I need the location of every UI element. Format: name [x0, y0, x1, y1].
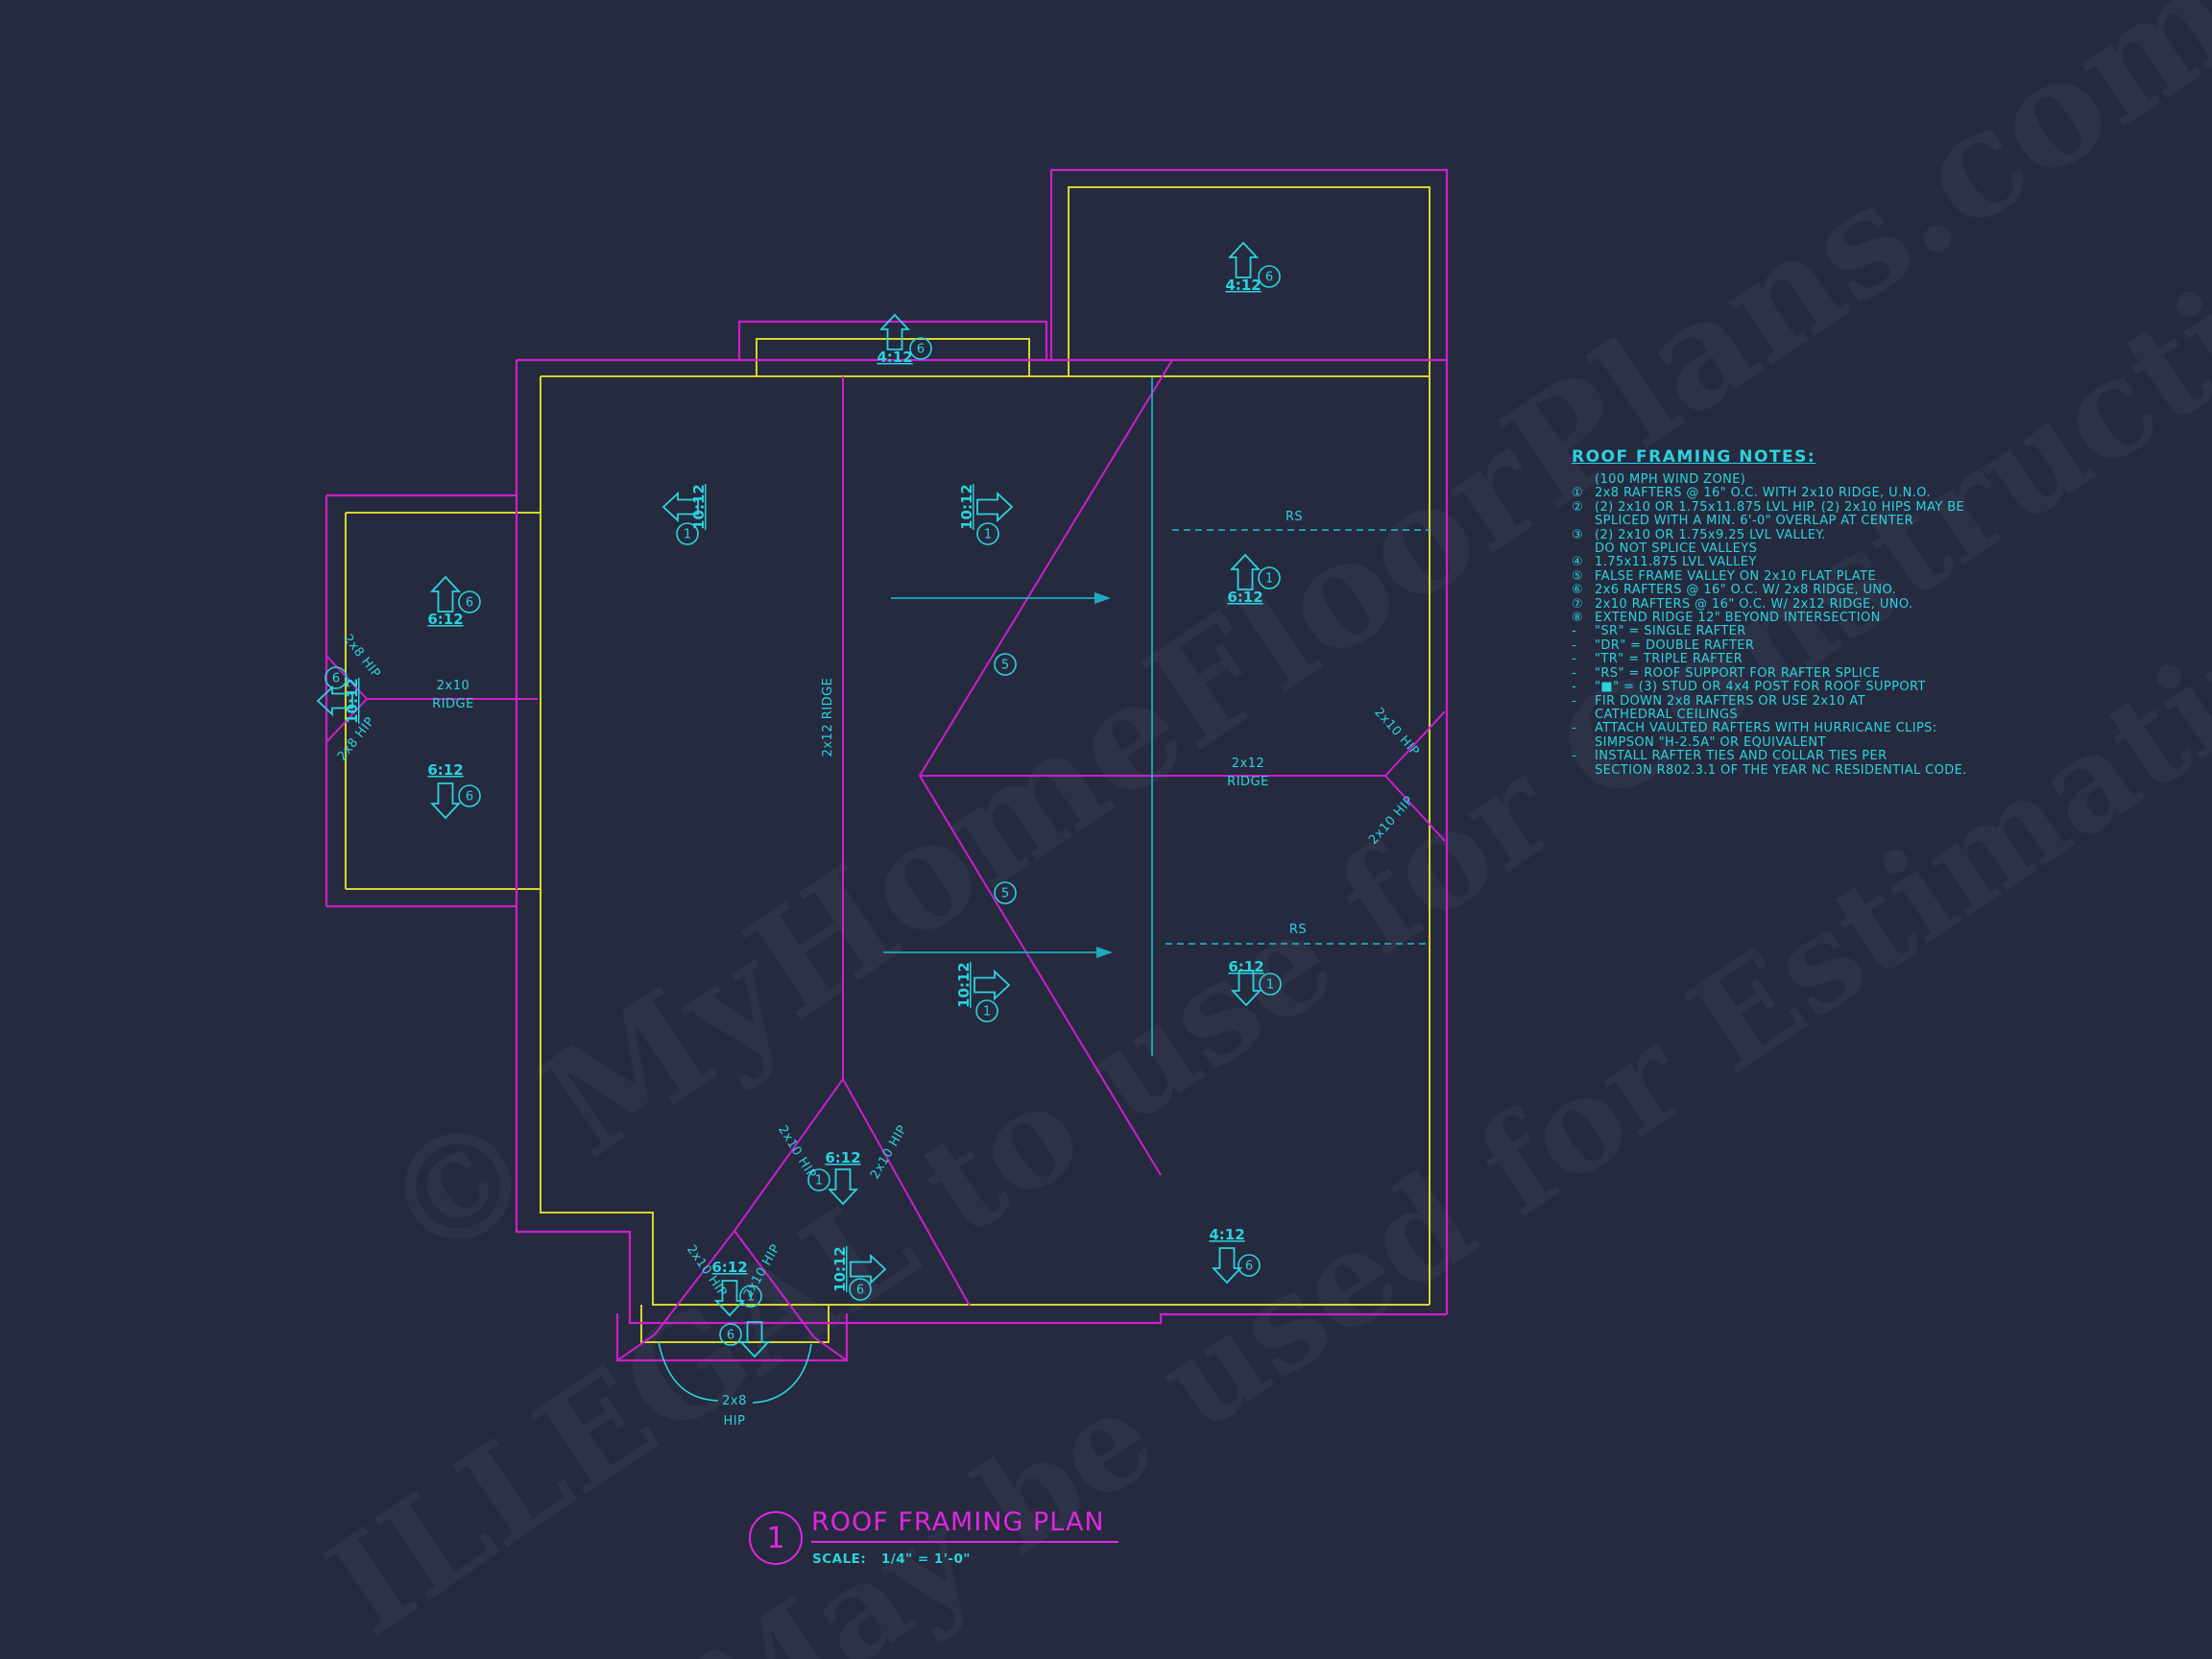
- ridge-label: 2x10: [437, 679, 470, 693]
- note-prefix: ④: [1572, 556, 1595, 569]
- note-prefix: ⑦: [1572, 598, 1595, 612]
- hip-label: 2x10 HIP: [1366, 794, 1417, 848]
- note-line: -"■" = (3) STUD OR 4x4 POST FOR ROOF SUP…: [1572, 681, 2004, 694]
- note-prefix: [1572, 709, 1595, 722]
- note-prefix: -: [1572, 667, 1595, 681]
- note-text: FALSE FRAME VALLEY ON 2x10 FLAT PLATE: [1595, 570, 2004, 584]
- note-prefix: ②: [1572, 501, 1595, 515]
- slope-label: 6:12: [427, 761, 463, 779]
- notes-title: ROOF FRAMING NOTES:: [1572, 447, 2004, 467]
- note-ref-number: 6: [332, 672, 340, 686]
- rs-label: RS: [1289, 923, 1307, 937]
- note-ref-number: 1: [983, 1005, 991, 1020]
- hip-label: 2x8: [722, 1394, 747, 1408]
- note-text: 2x8 RAFTERS @ 16" O.C. WITH 2x10 RIDGE, …: [1595, 487, 2004, 500]
- note-text: (100 MPH WIND ZONE): [1595, 473, 2004, 487]
- roof-framing-plan-drawing: 4:124:1210:1210:126:126:1210:126:126:121…: [0, 0, 2212, 1659]
- page-title: ROOF FRAMING PLAN: [811, 1507, 1118, 1543]
- slope-label: 6:12: [1227, 589, 1262, 606]
- note-text: "TR" = TRIPLE RAFTER: [1595, 653, 2004, 666]
- hip-label: HIP: [724, 1414, 746, 1429]
- ridge-label: 2x12 RIDGE: [821, 678, 835, 757]
- note-line: SIMPSON "H-2.5A" OR EQUIVALENT: [1572, 736, 2004, 750]
- note-line: -FIR DOWN 2x8 RAFTERS OR USE 2x10 AT: [1572, 695, 2004, 709]
- note-text: "DR" = DOUBLE RAFTER: [1595, 639, 2004, 653]
- note-text: SPLICED WITH A MIN. 6'-0" OVERLAP AT CEN…: [1595, 515, 2004, 528]
- note-line: -"RS" = ROOF SUPPORT FOR RAFTER SPLICE: [1572, 667, 2004, 681]
- note-prefix: -: [1572, 653, 1595, 666]
- note-line: ⑧EXTEND RIDGE 12" BEYOND INTERSECTION: [1572, 612, 2004, 625]
- note-ref-number: 6: [917, 343, 925, 357]
- scale-label: SCALE:: [812, 1551, 866, 1567]
- note-ref-number: 1: [984, 528, 992, 542]
- note-line: SPLICED WITH A MIN. 6'-0" OVERLAP AT CEN…: [1572, 515, 2004, 528]
- slope-arrow-up: [881, 315, 908, 349]
- notes-list: (100 MPH WIND ZONE)①2x8 RAFTERS @ 16" O.…: [1572, 473, 2004, 778]
- direction-arrowhead: [1096, 947, 1113, 958]
- note-text: EXTEND RIDGE 12" BEYOND INTERSECTION: [1595, 612, 2004, 625]
- note-prefix: [1572, 542, 1595, 556]
- slope-arrow-down: [1214, 1248, 1240, 1283]
- note-text: "■" = (3) STUD OR 4x4 POST FOR ROOF SUPP…: [1595, 681, 2004, 694]
- slope-label: 10:12: [955, 962, 973, 1008]
- title-block: 1 ROOF FRAMING PLAN SCALE: 1/4" = 1'-0": [739, 1505, 1238, 1592]
- rafter-splice-support-lines: [1166, 530, 1430, 944]
- note-line: -"SR" = SINGLE RAFTER: [1572, 625, 2004, 638]
- note-line: ⑤FALSE FRAME VALLEY ON 2x10 FLAT PLATE: [1572, 570, 2004, 584]
- note-line: -"DR" = DOUBLE RAFTER: [1572, 639, 2004, 653]
- slope-label: 10:12: [344, 678, 361, 724]
- note-line: (100 MPH WIND ZONE): [1572, 473, 2004, 487]
- detail-number-bubble: 1: [749, 1511, 803, 1565]
- note-text: "SR" = SINGLE RAFTER: [1595, 625, 2004, 638]
- note-line: CATHEDRAL CEILINGS: [1572, 709, 2004, 722]
- note-line: ②(2) 2x10 OR 1.75x11.875 LVL HIP. (2) 2x…: [1572, 501, 2004, 515]
- ridge-hip-valley-lines: [326, 360, 1445, 1360]
- note-text: SIMPSON "H-2.5A" OR EQUIVALENT: [1595, 736, 2004, 750]
- slope-label: 10:12: [958, 484, 975, 530]
- note-ref-number: 5: [1001, 887, 1009, 902]
- note-line: ⑥2x6 RAFTERS @ 16" O.C. W/ 2x8 RIDGE, UN…: [1572, 584, 2004, 597]
- note-prefix: -: [1572, 625, 1595, 638]
- slope-arrow-right: [974, 972, 1009, 998]
- slope-arrow-down: [1233, 971, 1260, 1005]
- hip-label: 2x8 HIP: [340, 632, 383, 681]
- note-prefix: -: [1572, 722, 1595, 735]
- note-prefix: ⑧: [1572, 612, 1595, 625]
- note-text: (2) 2x10 OR 1.75x11.875 LVL HIP. (2) 2x1…: [1595, 501, 2004, 515]
- note-prefix: -: [1572, 695, 1595, 709]
- note-prefix: ⑤: [1572, 570, 1595, 584]
- scale-note: SCALE: 1/4" = 1'-0": [812, 1551, 971, 1567]
- hip-label: 2x10 HIP: [775, 1123, 819, 1182]
- slope-label: 4:12: [877, 349, 912, 366]
- note-prefix: [1572, 515, 1595, 528]
- note-ref-number: 1: [815, 1174, 823, 1189]
- hip-label: 2x10 HIP: [868, 1123, 910, 1182]
- note-prefix: [1572, 764, 1595, 778]
- note-text: DO NOT SPLICE VALLEYS: [1595, 542, 2004, 556]
- note-ref-number: 1: [1266, 978, 1274, 993]
- note-ref-number: 6: [727, 1329, 734, 1343]
- note-prefix: -: [1572, 750, 1595, 763]
- slope-label: 6:12: [825, 1149, 860, 1166]
- slope-arrow-down: [829, 1169, 856, 1204]
- note-ref-number: 6: [1245, 1260, 1253, 1274]
- note-line: ③(2) 2x10 OR 1.75x9.25 LVL VALLEY.: [1572, 529, 2004, 542]
- slope-arrow-up: [1230, 243, 1257, 277]
- note-text: (2) 2x10 OR 1.75x9.25 LVL VALLEY.: [1595, 529, 2004, 542]
- slope-label: 4:12: [1225, 276, 1261, 294]
- note-text: INSTALL RAFTER TIES AND COLLAR TIES PER: [1595, 750, 2004, 763]
- note-prefix: ①: [1572, 487, 1595, 500]
- note-line: -INSTALL RAFTER TIES AND COLLAR TIES PER: [1572, 750, 2004, 763]
- note-text: 1.75x11.875 LVL VALLEY: [1595, 556, 2004, 569]
- note-line: -ATTACH VAULTED RAFTERS WITH HURRICANE C…: [1572, 722, 2004, 735]
- note-text: ATTACH VAULTED RAFTERS WITH HURRICANE CL…: [1595, 722, 2004, 735]
- hip-label: 2x10 HIP: [1371, 706, 1422, 759]
- ridge-label: RIDGE: [1227, 775, 1269, 789]
- note-line: SECTION R802.3.1 OF THE YEAR NC RESIDENT…: [1572, 764, 2004, 778]
- note-ref-number: 6: [1265, 271, 1273, 285]
- note-line: ①2x8 RAFTERS @ 16" O.C. WITH 2x10 RIDGE,…: [1572, 487, 2004, 500]
- note-text: "RS" = ROOF SUPPORT FOR RAFTER SPLICE: [1595, 667, 2004, 681]
- slope-arrow-up: [1232, 555, 1259, 589]
- ridge-label: RIDGE: [432, 697, 474, 711]
- slope-arrow-up: [432, 577, 459, 612]
- rs-label: RS: [1286, 510, 1303, 524]
- note-ref-number: 6: [466, 790, 473, 805]
- note-line: ④1.75x11.875 LVL VALLEY: [1572, 556, 2004, 569]
- note-ref-number: 1: [684, 528, 691, 542]
- note-prefix: -: [1572, 681, 1595, 694]
- slope-label: 4:12: [1209, 1226, 1244, 1243]
- roof-framing-notes: ROOF FRAMING NOTES: (100 MPH WIND ZONE)①…: [1572, 447, 2004, 778]
- slope-label: 10:12: [690, 484, 708, 530]
- slope-label: 6:12: [427, 611, 463, 628]
- note-line: ⑦2x10 RAFTERS @ 16" O.C. W/ 2x12 RIDGE, …: [1572, 598, 2004, 612]
- note-text: 2x10 RAFTERS @ 16" O.C. W/ 2x12 RIDGE, U…: [1595, 598, 2004, 612]
- note-prefix: -: [1572, 639, 1595, 653]
- note-prefix: [1572, 736, 1595, 750]
- ridge-label: 2x12: [1232, 757, 1265, 771]
- note-ref-number: 5: [1001, 659, 1009, 673]
- slope-label: 10:12: [831, 1246, 849, 1292]
- note-ref-number: 6: [466, 596, 473, 611]
- note-prefix: [1572, 473, 1595, 487]
- note-ref-number: 1: [1265, 572, 1273, 587]
- slope-label: 6:12: [1228, 958, 1263, 975]
- note-text: 2x6 RAFTERS @ 16" O.C. W/ 2x8 RIDGE, UNO…: [1595, 584, 2004, 597]
- slope-arrow-right: [851, 1256, 885, 1283]
- slope-arrow-down: [741, 1322, 768, 1357]
- note-line: -"TR" = TRIPLE RAFTER: [1572, 653, 2004, 666]
- scale-value: 1/4" = 1'-0": [881, 1551, 971, 1567]
- note-prefix: ③: [1572, 529, 1595, 542]
- note-ref-number: 6: [856, 1284, 864, 1298]
- note-text: SECTION R802.3.1 OF THE YEAR NC RESIDENT…: [1595, 764, 2004, 778]
- direction-arrowhead: [1094, 592, 1111, 604]
- note-text: CATHEDRAL CEILINGS: [1595, 709, 2004, 722]
- roof-framing-sheet: © MyHomeFloorPlans.com ILLEGAL to use fo…: [0, 0, 2212, 1659]
- slope-arrow-down: [432, 783, 459, 818]
- note-prefix: ⑥: [1572, 584, 1595, 597]
- note-text: FIR DOWN 2x8 RAFTERS OR USE 2x10 AT: [1595, 695, 2004, 709]
- note-line: DO NOT SPLICE VALLEYS: [1572, 542, 2004, 556]
- slope-arrow-right: [977, 493, 1012, 520]
